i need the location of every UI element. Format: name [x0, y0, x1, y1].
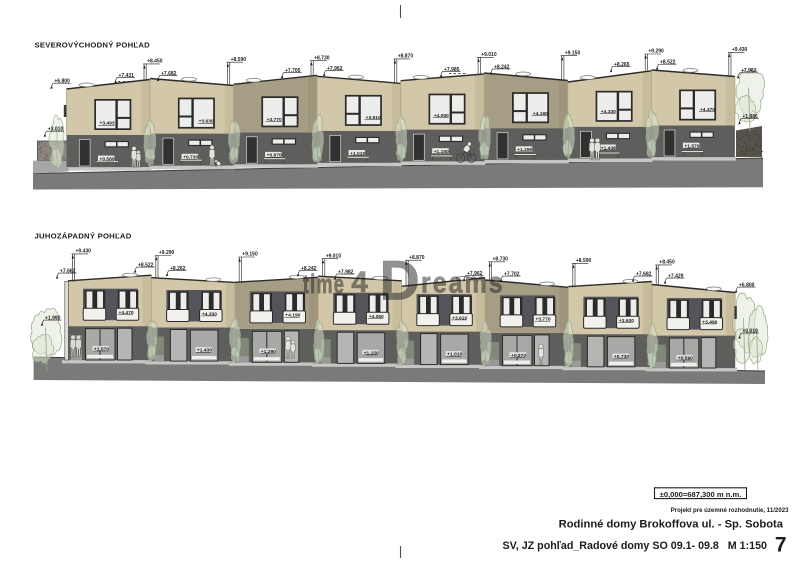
svg-text:Projekt pre územné rozhodnutie: Projekt pre územné rozhodnutie, 11/2023: [671, 507, 789, 514]
svg-text:reams: reams: [421, 266, 505, 299]
svg-text:+1.436: +1.436: [601, 145, 616, 151]
svg-text:+0.730: +0.730: [183, 155, 198, 161]
svg-text:+8.522: +8.522: [138, 263, 154, 269]
svg-text:+1.290: +1.290: [261, 349, 276, 355]
svg-text:+8.450: +8.450: [147, 59, 163, 65]
svg-text:+3.010: +3.010: [48, 127, 64, 133]
svg-text:4: 4: [351, 266, 368, 299]
svg-text:+1.570: +1.570: [94, 346, 109, 352]
svg-text:+1.290: +1.290: [517, 147, 532, 153]
svg-text:+8.242: +8.242: [494, 64, 510, 70]
svg-text:+8.522: +8.522: [660, 60, 676, 66]
svg-text:7: 7: [775, 534, 787, 557]
svg-text:SV, JZ pohľad_Radové domy SO 0: SV, JZ pohľad_Radové domy SO 09.1- 09.8 …: [503, 540, 768, 552]
svg-text:+7.662: +7.662: [60, 269, 76, 275]
svg-text:+7.431: +7.431: [119, 73, 135, 79]
svg-text:+9.150: +9.150: [565, 50, 581, 56]
svg-text:+0.870: +0.870: [267, 153, 282, 159]
svg-text:+3.490: +3.490: [702, 319, 717, 325]
svg-text:+1.010: +1.010: [447, 352, 462, 358]
svg-text:SEVEROVÝCHODNÝ POHĽAD: SEVEROVÝCHODNÝ POHĽAD: [35, 41, 151, 50]
svg-text:+7.682: +7.682: [161, 71, 177, 77]
svg-text:+9.290: +9.290: [159, 250, 175, 256]
svg-text:+8.590: +8.590: [231, 57, 247, 63]
svg-text:+7.702: +7.702: [504, 272, 520, 278]
svg-text:+4.050: +4.050: [434, 113, 449, 119]
svg-text:+3.010: +3.010: [743, 329, 759, 335]
svg-text:+7.962: +7.962: [467, 271, 483, 277]
svg-text:+4.050: +4.050: [369, 314, 384, 320]
svg-text:±0,000=687,300 m n.m.: ±0,000=687,300 m n.m.: [660, 490, 742, 499]
svg-text:+7.962: +7.962: [327, 66, 343, 72]
svg-text:+0.580: +0.580: [100, 156, 115, 162]
svg-text:+8.265: +8.265: [614, 62, 630, 68]
svg-text:+9.010: +9.010: [481, 52, 497, 58]
svg-text:+0.870: +0.870: [511, 353, 526, 359]
svg-text:+7.985: +7.985: [444, 67, 460, 73]
svg-text:+9.430: +9.430: [732, 47, 748, 53]
svg-text:+3.770: +3.770: [536, 317, 551, 323]
svg-text:+1.150: +1.150: [434, 149, 449, 155]
svg-text:+1.010: +1.010: [350, 151, 365, 157]
svg-text:+9.430: +9.430: [76, 249, 92, 255]
svg-text:+9.290: +9.290: [648, 49, 664, 55]
svg-text:+0.730: +0.730: [614, 354, 629, 360]
svg-text:+4.190: +4.190: [533, 111, 548, 117]
svg-text:+7.429: +7.429: [668, 274, 684, 280]
svg-text:+9.150: +9.150: [242, 252, 258, 258]
svg-text:+4.330: +4.330: [601, 109, 616, 115]
svg-text:+7.705: +7.705: [285, 68, 301, 74]
svg-text:+8.450: +8.450: [659, 260, 675, 266]
svg-text:+3.493: +3.493: [100, 121, 115, 127]
svg-text:+1.990: +1.990: [45, 316, 61, 322]
svg-text:+3.630: +3.630: [199, 119, 214, 125]
svg-text:+8.262: +8.262: [170, 266, 186, 272]
svg-text:+1.570: +1.570: [684, 144, 699, 150]
svg-text:+9.010: +9.010: [326, 253, 342, 259]
svg-text:+8.242: +8.242: [301, 266, 317, 272]
svg-text:+0.590: +0.590: [678, 355, 693, 361]
svg-text:Rodinné domy Brokoffova ul. -: Rodinné domy Brokoffova ul. - Sp. Sobota: [559, 519, 784, 531]
svg-text:+1.986: +1.986: [742, 114, 758, 120]
svg-text:+3.910: +3.910: [366, 115, 381, 121]
svg-text:JUHOZÁPADNÝ POHĽAD: JUHOZÁPADNÝ POHĽAD: [35, 232, 132, 241]
svg-text:+6.800: +6.800: [739, 283, 755, 289]
svg-text:+7.682: +7.682: [636, 272, 652, 278]
svg-text:+3.770: +3.770: [267, 117, 282, 123]
svg-text:+8.730: +8.730: [314, 55, 330, 61]
svg-text:+7.982: +7.982: [338, 270, 354, 276]
svg-text:+8.590: +8.590: [576, 258, 592, 264]
svg-text:+4.470: +4.470: [700, 107, 715, 113]
svg-text:+8.870: +8.870: [409, 255, 425, 261]
svg-text:+1.430: +1.430: [197, 348, 212, 354]
svg-text:+8.870: +8.870: [398, 54, 414, 60]
svg-text:+7.982: +7.982: [741, 68, 757, 74]
svg-text:+4.470: +4.470: [119, 310, 134, 316]
svg-text:+4.330: +4.330: [202, 311, 217, 317]
svg-text:+3.630: +3.630: [619, 318, 634, 324]
svg-text:+8.730: +8.730: [493, 256, 509, 262]
svg-text:+1.150: +1.150: [364, 350, 379, 356]
svg-text:+4.190: +4.190: [285, 313, 300, 319]
svg-text:+6.800: +6.800: [54, 79, 70, 85]
svg-text:+3.910: +3.910: [452, 315, 467, 321]
